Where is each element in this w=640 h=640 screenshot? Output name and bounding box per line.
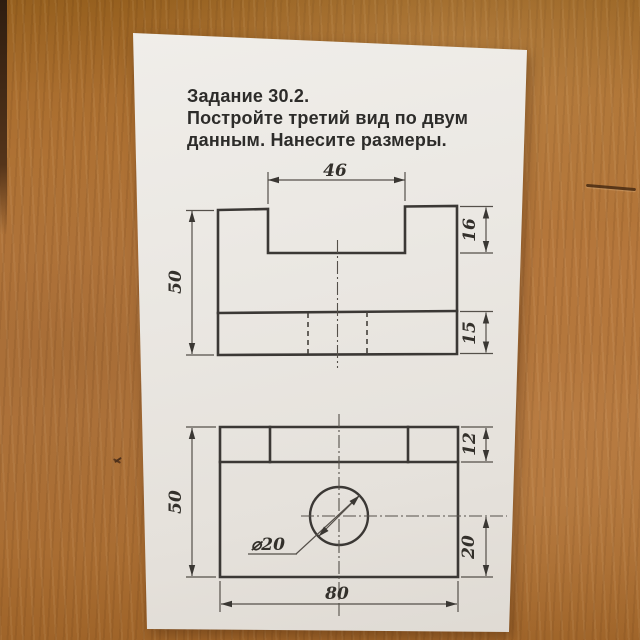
dim-label-d20: ⌀20 <box>251 535 285 555</box>
dim-label-80: 80 <box>324 584 349 604</box>
front-view: 46 50 16 15 <box>166 161 493 368</box>
top-view: ⌀20 50 12 20 <box>166 414 507 616</box>
front-dim-height: 50 <box>166 211 214 356</box>
technical-drawing: 46 50 16 15 <box>0 0 640 640</box>
dim-label-15: 15 <box>460 321 480 345</box>
dim-label-20: 20 <box>459 535 479 560</box>
dim-label-50-front: 50 <box>166 270 186 294</box>
dim-label-16: 16 <box>460 218 480 242</box>
front-dim-base-band: 15 <box>460 312 493 354</box>
top-dim-hole-offset: 20 <box>459 517 493 577</box>
top-dim-hole-diameter: ⌀20 <box>248 496 360 556</box>
photo-scene: Задание 30.2. Постройте третий вид по дв… <box>0 0 640 640</box>
front-dim-notch-width: 46 <box>268 161 405 204</box>
front-dim-notch-depth: 16 <box>460 207 493 254</box>
top-dim-depth: 50 <box>166 427 216 577</box>
dim-label-12: 12 <box>460 432 480 456</box>
dim-label-50-top: 50 <box>166 490 186 514</box>
top-dim-band: 12 <box>460 427 493 462</box>
dim-label-46: 46 <box>323 161 347 181</box>
